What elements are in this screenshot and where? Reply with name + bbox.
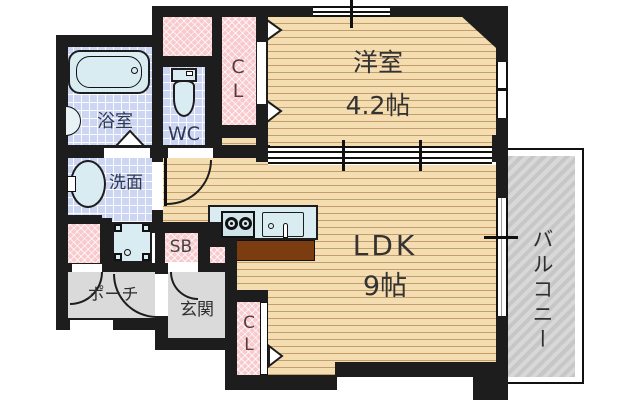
wall-wc-cl-upper — [212, 17, 222, 67]
kitchen-faucet — [283, 223, 288, 238]
label-bathroom: 浴室 — [84, 112, 146, 133]
label-ldk: LDK — [330, 230, 440, 262]
partition-tick-1 — [342, 140, 345, 171]
wm-corner-br — [142, 253, 150, 261]
washbasin-faucet — [67, 176, 76, 192]
ldk-floor-main — [268, 165, 496, 375]
kitchen-sink-dot — [268, 223, 274, 229]
partition-sliding-door — [268, 146, 492, 164]
wall-washroom-closet-right — [100, 218, 112, 265]
wall-wc-cl-divider — [205, 67, 222, 148]
wm-drain — [124, 249, 131, 256]
wall-ldk-bottom-right — [335, 362, 475, 377]
wm-corner-bl — [114, 253, 122, 261]
wall-storage-wc — [163, 56, 212, 67]
wall-cl-bottom — [222, 125, 256, 138]
label-closet-top: CL — [226, 50, 248, 110]
bathroom-door-opening — [104, 148, 150, 158]
label-entrance: 玄関 — [170, 301, 224, 321]
window-ldk-tick — [484, 236, 518, 239]
wall-ldk-right-upper — [496, 162, 508, 198]
wall-entrance-bottom — [155, 338, 237, 350]
sb-door-opening — [168, 262, 198, 272]
label-western-room-size: 4.2帖 — [318, 92, 438, 121]
label-balcony: バルコニー — [528, 215, 554, 365]
partition-tick-2 — [419, 140, 422, 171]
toilet-bowl-icon — [173, 80, 195, 117]
bathtub-drain — [131, 67, 138, 74]
wall-ldk-bottom-left — [225, 375, 337, 390]
stove-burner-left-dot — [230, 222, 233, 225]
closet-top-door-panel — [257, 42, 266, 104]
window-ldk-right — [496, 198, 508, 316]
porch-closet-opening — [72, 264, 102, 272]
stove-burner-right-dot — [244, 222, 247, 225]
closet-bottom-door-triangle-icon — [267, 344, 285, 368]
closet-top-door-triangle-upper-icon — [265, 18, 284, 42]
floor-plan: 洋室 4.2帖 LDK 9帖 バルコニー 浴室 洗面 WC CL SB ポーチ … — [0, 0, 640, 400]
wall-partition-nub-left — [256, 135, 268, 162]
wm-corner-tr — [142, 224, 150, 232]
label-closet-bottom: CL — [238, 306, 258, 364]
window-western-right — [496, 62, 508, 118]
wall-cl-bottom-top — [225, 290, 268, 302]
wall-bath-top — [56, 35, 163, 47]
washroom-door-opening — [153, 162, 163, 210]
wall-entrance-top — [198, 263, 225, 272]
label-porch: ポーチ — [70, 286, 156, 306]
toilet-tank-button — [186, 71, 193, 76]
storage-above-wc — [163, 17, 212, 56]
western-room-floor — [268, 17, 496, 148]
wall-bath-wc-divider — [152, 17, 163, 162]
wall-partition-nub-right — [492, 135, 508, 162]
label-shoe-box: SB — [162, 238, 200, 258]
label-toilet: WC — [164, 124, 204, 146]
label-washroom: 洗面 — [102, 174, 150, 194]
wall-top-a — [152, 6, 313, 17]
label-ldk-size: 9帖 — [330, 271, 440, 302]
porch-entry-opening — [70, 320, 113, 330]
closet-top-door-triangle-lower-icon — [265, 99, 284, 124]
wall-west-right-upper — [496, 45, 508, 62]
window-top-tick — [350, 0, 353, 28]
wall-bottom-right-column — [473, 362, 508, 400]
wm-corner-tl — [114, 224, 122, 232]
small-pink-nook — [210, 247, 225, 263]
wc-door-opening — [168, 148, 213, 158]
label-western-room: 洋室 — [328, 49, 428, 78]
wall-washroom-closet-top — [62, 215, 102, 224]
wall-entrance-right — [225, 230, 237, 378]
kitchen-counter-brown — [236, 240, 315, 261]
